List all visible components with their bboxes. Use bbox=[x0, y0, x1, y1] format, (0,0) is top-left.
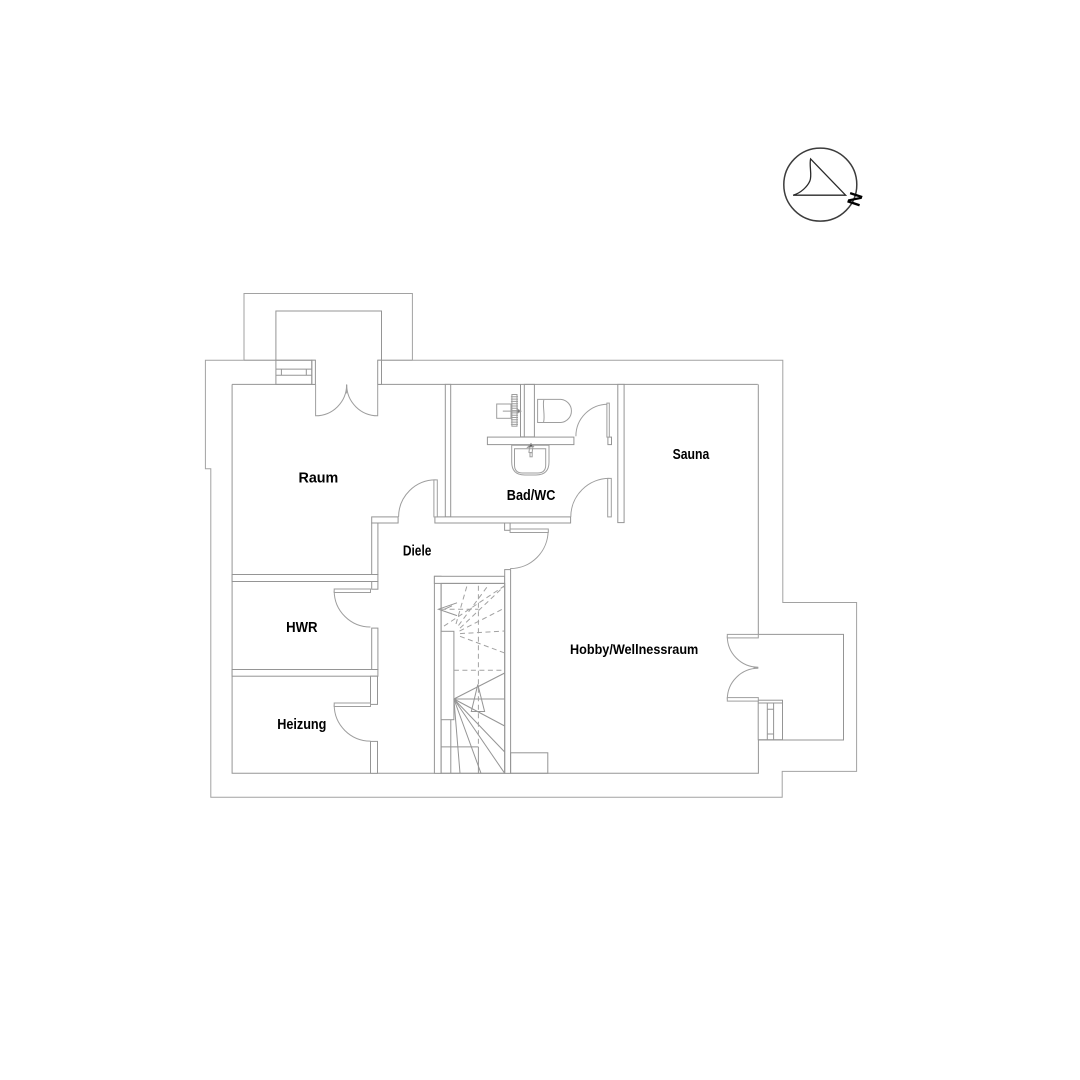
svg-text:Sauna: Sauna bbox=[673, 447, 710, 463]
svg-text:HWR: HWR bbox=[286, 619, 318, 636]
svg-text:Heizung: Heizung bbox=[277, 717, 326, 733]
svg-text:Bad/WC: Bad/WC bbox=[507, 488, 556, 504]
svg-text:Raum: Raum bbox=[299, 469, 339, 486]
svg-text:Diele: Diele bbox=[403, 544, 432, 560]
svg-text:Hobby/Wellnessraum: Hobby/Wellnessraum bbox=[570, 642, 698, 657]
